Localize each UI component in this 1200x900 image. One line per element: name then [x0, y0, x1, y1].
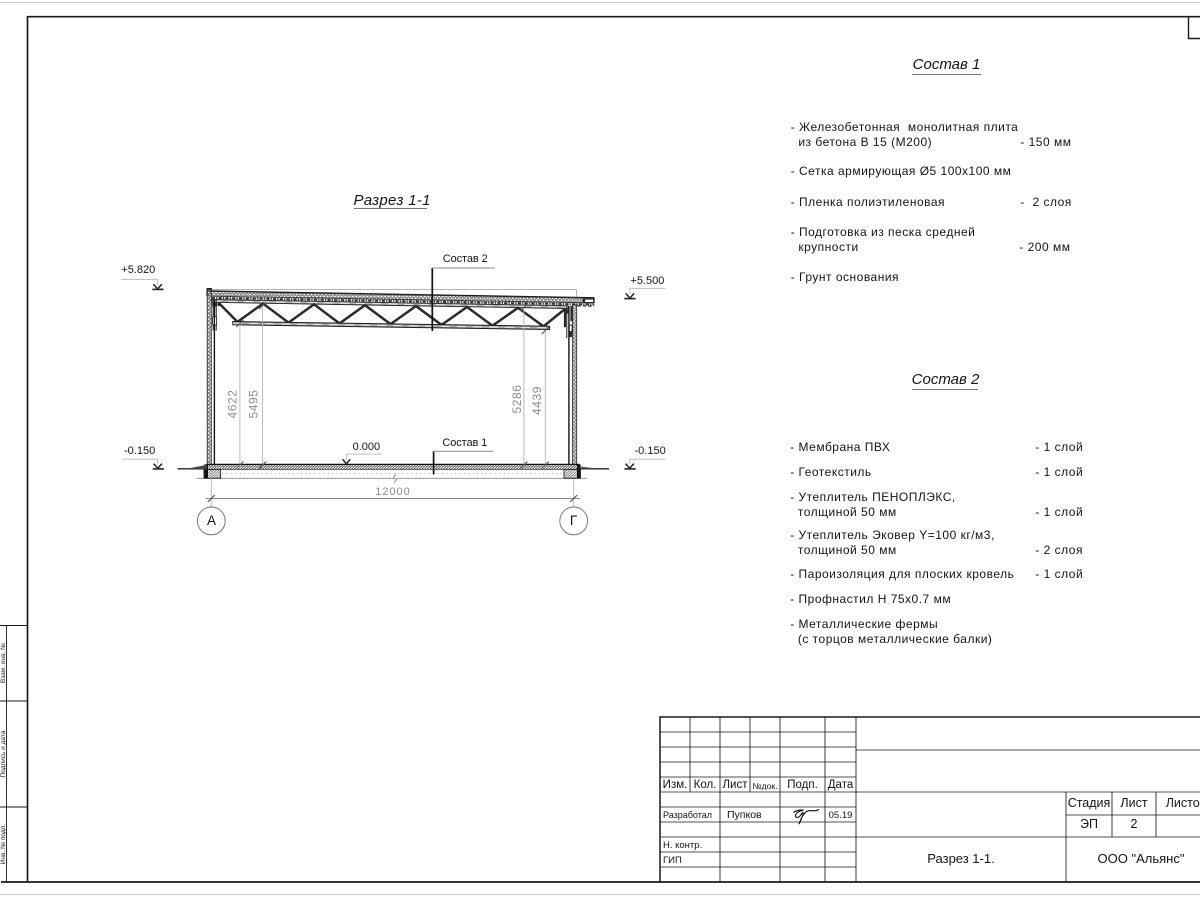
- svg-text:5495: 5495: [247, 389, 261, 418]
- svg-text:5286: 5286: [510, 384, 524, 413]
- svg-text:Подпись и дата: Подпись и дата: [0, 730, 7, 777]
- svg-text:Взам. инв. №: Взам. инв. №: [0, 643, 7, 683]
- svg-text:4622: 4622: [225, 389, 239, 418]
- svg-text:4439: 4439: [530, 386, 544, 415]
- svg-text:Инв. № подл.: Инв. № подл.: [0, 824, 7, 865]
